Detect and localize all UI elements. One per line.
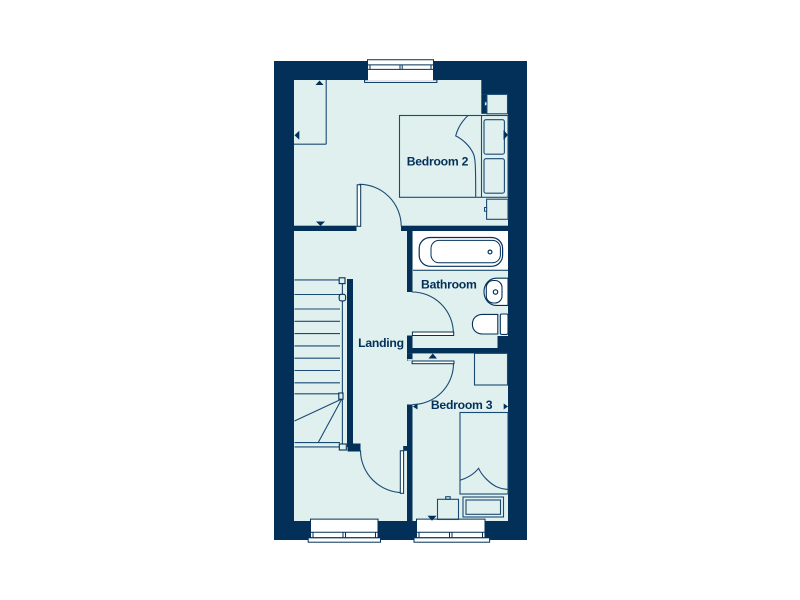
svg-text:Landing: Landing <box>358 336 404 350</box>
svg-text:Bedroom 2: Bedroom 2 <box>407 154 469 168</box>
svg-text:Bathroom: Bathroom <box>421 277 477 291</box>
svg-text:Bedroom 3: Bedroom 3 <box>431 398 493 412</box>
